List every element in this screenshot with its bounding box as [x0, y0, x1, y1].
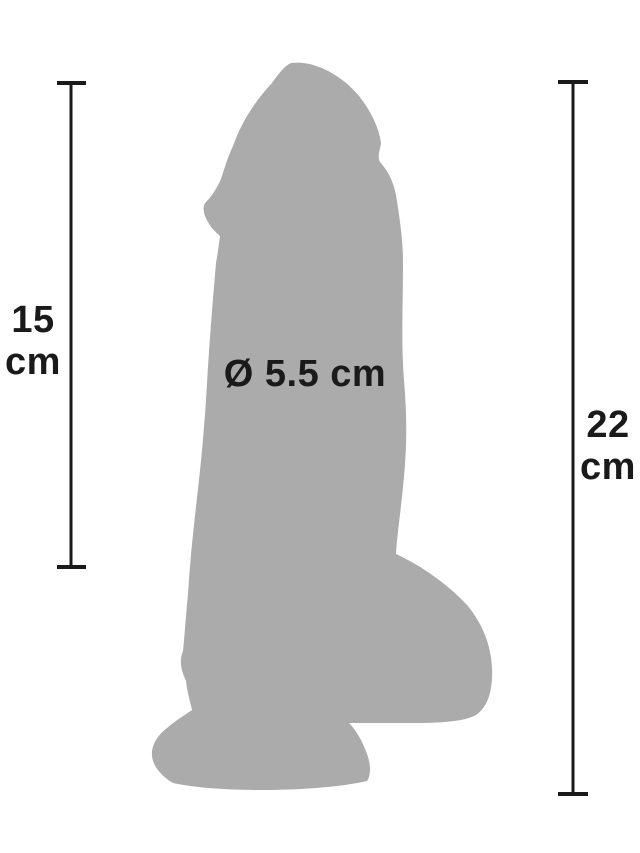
left-measurement-value: 15: [2, 299, 64, 341]
dimension-diagram: 15 cm 22 cm Ø 5.5 cm: [0, 0, 640, 853]
left-measurement-unit: cm: [2, 341, 64, 383]
right-measurement-label: 22 cm: [576, 404, 640, 488]
right-measurement-value: 22: [576, 404, 640, 446]
diameter-label: Ø 5.5 cm: [203, 353, 407, 395]
product-silhouette: [152, 63, 492, 790]
right-measurement-unit: cm: [576, 446, 640, 488]
diagram-drawing: [0, 0, 640, 853]
left-measurement-label: 15 cm: [2, 299, 64, 383]
